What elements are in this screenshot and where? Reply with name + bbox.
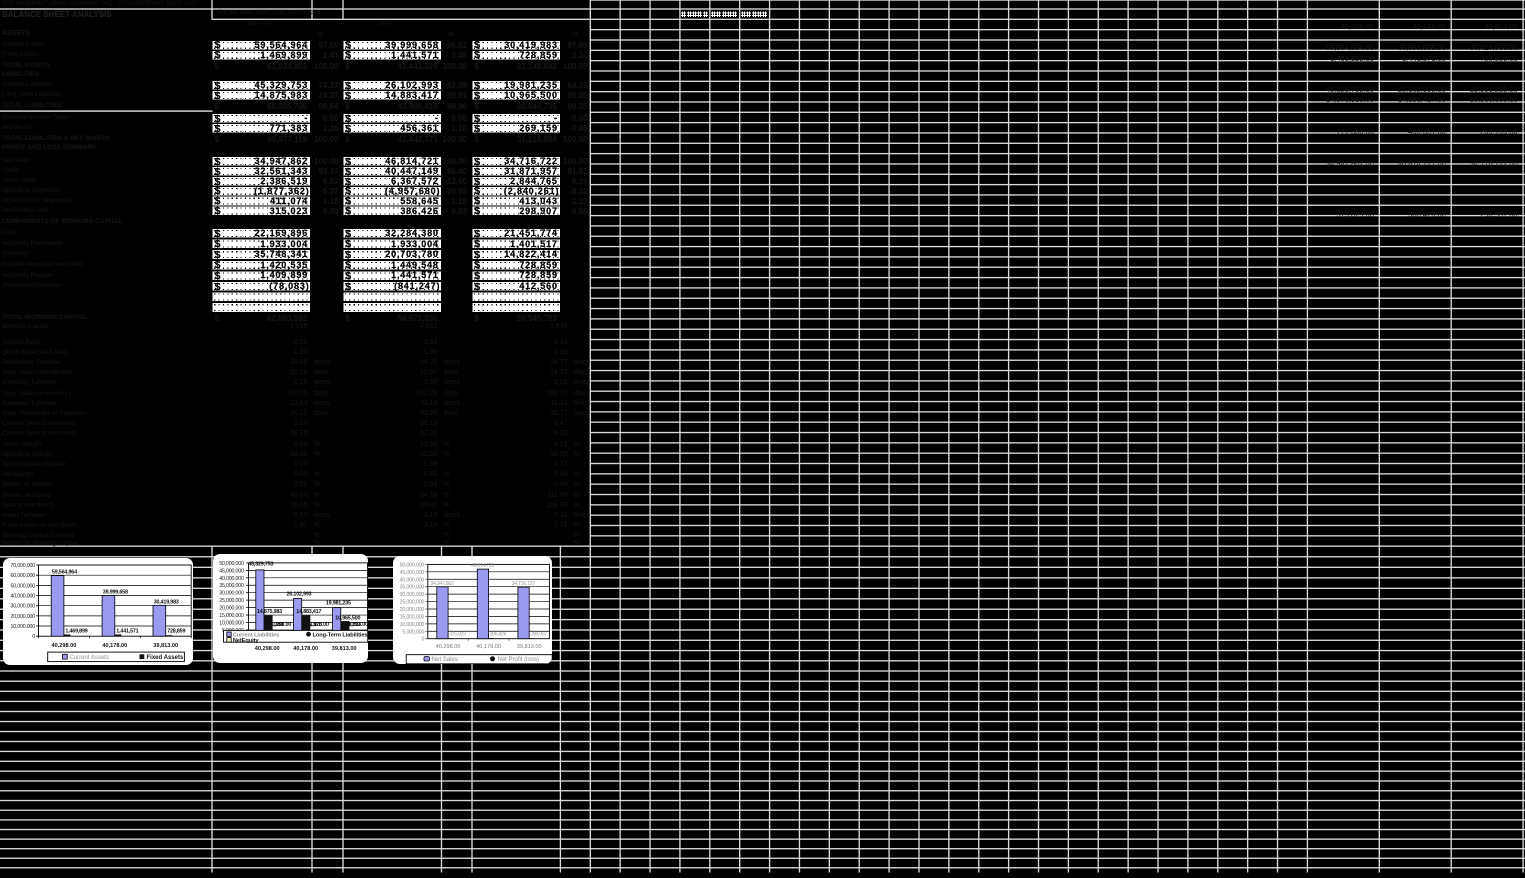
svg-text:0: 0 [422,637,425,643]
svg-text:NetEquity: NetEquity [233,638,260,644]
svg-text:20,000,000: 20,000,000 [220,606,245,612]
svg-text:39,813.00: 39,813.00 [517,644,542,650]
svg-text:30,000,000: 30,000,000 [10,603,35,609]
svg-text:1,469,899: 1,469,899 [65,628,87,634]
svg-text:34,716,722: 34,716,722 [512,581,535,587]
svg-text:40,298.00: 40,298.00 [255,646,280,652]
svg-text:40,000,000: 40,000,000 [400,578,425,584]
svg-text:50,000,000: 50,000,000 [10,583,35,589]
svg-text:Fixed Assets: Fixed Assets [146,655,183,661]
svg-text:40,178.00: 40,178.00 [476,644,501,650]
svg-text:30,000,000: 30,000,000 [220,591,245,597]
svg-text:45,000,000: 45,000,000 [400,570,425,576]
svg-text:298,907: 298,907 [530,632,547,638]
svg-text:30,000,000: 30,000,000 [400,592,425,598]
svg-text:40,000,000: 40,000,000 [10,593,35,599]
svg-text:14,875,983: 14,875,983 [257,609,282,615]
svg-text:34,947,862: 34,947,862 [431,581,454,587]
svg-text:40,298.00: 40,298.00 [51,643,76,649]
svg-text:26,102,993: 26,102,993 [287,592,312,598]
svg-text:Net Profit (loss): Net Profit (loss) [498,657,539,663]
svg-text:5,000,000: 5,000,000 [403,630,425,636]
svg-text:Long-Term Liabilities: Long-Term Liabilities [313,633,368,639]
svg-text:20,000,000: 20,000,000 [400,607,425,613]
svg-text:10,965,500: 10,965,500 [336,616,361,622]
svg-text:10,000,000: 10,000,000 [10,624,35,630]
svg-text:20,000,000: 20,000,000 [10,614,35,620]
svg-text:50,000,000: 50,000,000 [400,563,425,569]
svg-text:25,000,000: 25,000,000 [400,600,425,606]
svg-text:10,000,000: 10,000,000 [400,622,425,628]
svg-text:Current Assets: Current Assets [69,655,108,661]
svg-text:Net Sales: Net Sales [432,657,458,663]
svg-text:40,298.00: 40,298.00 [436,644,461,650]
svg-text:30,419,983: 30,419,983 [153,599,178,605]
svg-text:315,023: 315,023 [449,632,466,638]
svg-text:40,178.00: 40,178.00 [307,622,329,628]
svg-text:45,329,753: 45,329,753 [249,562,274,568]
svg-text:0: 0 [32,634,35,640]
svg-text:39,813.00: 39,813.00 [332,646,357,652]
svg-text:46,814,721: 46,814,721 [471,563,494,569]
svg-text:59,564,964: 59,564,964 [51,569,76,575]
svg-text:19,981,235: 19,981,235 [326,601,351,607]
svg-text:1,441,571: 1,441,571 [116,628,138,634]
svg-text:10,000,000: 10,000,000 [220,621,245,627]
svg-text:70,000,000: 70,000,000 [10,563,35,569]
svg-text:35,000,000: 35,000,000 [220,583,245,589]
svg-text:15,000,000: 15,000,000 [220,613,245,619]
svg-text:39,999,658: 39,999,658 [102,589,127,595]
svg-text:40,178.00: 40,178.00 [102,643,127,649]
svg-text:25,000,000: 25,000,000 [220,598,245,604]
svg-text:50,000,000: 50,000,000 [220,561,245,567]
svg-text:40,178.00: 40,178.00 [294,646,319,652]
svg-text:386,426: 386,426 [490,632,507,638]
svg-text:35,000,000: 35,000,000 [400,585,425,591]
svg-text:39,813.00: 39,813.00 [153,643,178,649]
svg-text:40,000,000: 40,000,000 [220,576,245,582]
svg-text:60,000,000: 60,000,000 [10,573,35,579]
svg-text:40,298.00: 40,298.00 [269,622,291,628]
svg-text:728,859: 728,859 [167,628,185,634]
svg-text:14,883,417: 14,883,417 [297,609,322,615]
svg-text:15,000,000: 15,000,000 [400,615,425,621]
svg-text:45,000,000: 45,000,000 [220,569,245,575]
svg-text:39,813.00: 39,813.00 [346,622,368,628]
